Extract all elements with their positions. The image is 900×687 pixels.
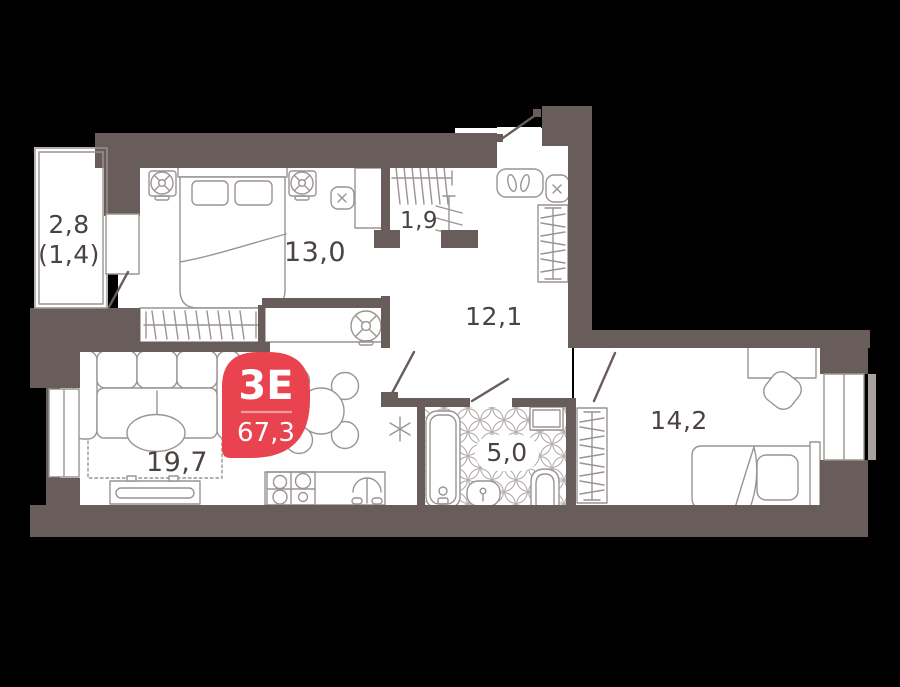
bathroom-shelf-icon (530, 407, 563, 430)
wall-closet-left (381, 166, 390, 238)
kitchen-bottom-counter (265, 472, 385, 505)
wall-counter-divider (258, 305, 265, 345)
bathtub-icon (426, 411, 460, 508)
wall-bottom (30, 505, 868, 537)
wall-corner-left (30, 308, 140, 352)
wall-right-upper (820, 330, 868, 374)
window-right (824, 374, 876, 460)
apartment-floor-plan: 2,8 (1,4) 13,0 1,9 12,1 19,7 5,0 14,2 3Е… (0, 0, 900, 687)
wardrobe-area-label: 1,9 (400, 208, 438, 234)
bedroom-main-area-label: 13,0 (284, 237, 346, 268)
wall-entry-right (542, 106, 592, 146)
bathroom-sink-icon (467, 481, 500, 506)
wall-kitchen-top (262, 298, 390, 308)
wardrobe-rod-bedroom-main (140, 308, 262, 342)
wall-bath-top-left (395, 398, 470, 407)
balcony-reduced-area-label: (1,4) (38, 240, 100, 269)
double-bed-icon (178, 167, 287, 308)
closet-second-furniture (577, 408, 607, 503)
balcony-door-unit (106, 214, 139, 274)
stool-icon (546, 175, 569, 202)
entry-threshold (497, 127, 541, 145)
wall-hallway-right (568, 143, 592, 348)
coffee-table-icon (127, 415, 185, 452)
window-left (49, 389, 79, 477)
single-bed-icon (692, 442, 820, 509)
badge-layout-label: 3Е (238, 363, 293, 409)
shoe-cabinet-icon (497, 169, 543, 197)
wall-closet-stub (441, 230, 478, 248)
hallway-area-label: 12,1 (465, 302, 523, 331)
wall-wardrobe-bottom (138, 342, 270, 352)
wall-kitchen-right (381, 296, 390, 348)
floor-plan-page: 2,8 (1,4) 13,0 1,9 12,1 19,7 5,0 14,2 3Е… (0, 0, 900, 687)
living-kitchen-area-label: 19,7 (146, 447, 208, 478)
balcony-area-label: 2,8 (48, 210, 89, 239)
badge-total-area: 67,3 (237, 418, 295, 448)
bedroom-second-area-label: 14,2 (650, 406, 708, 435)
wall-left-upper (30, 352, 80, 388)
kitchen-top-counter (265, 305, 385, 345)
hallway-wardrobe-icon (538, 205, 568, 282)
wall-closet-post (374, 230, 400, 248)
wall-bath-left (417, 398, 425, 512)
wall-bath-right (566, 398, 576, 512)
wall-bedroom-left (104, 150, 140, 216)
toilet-icon (531, 469, 559, 506)
wall-top (95, 133, 497, 168)
bathroom-area-label: 5,0 (486, 438, 527, 467)
